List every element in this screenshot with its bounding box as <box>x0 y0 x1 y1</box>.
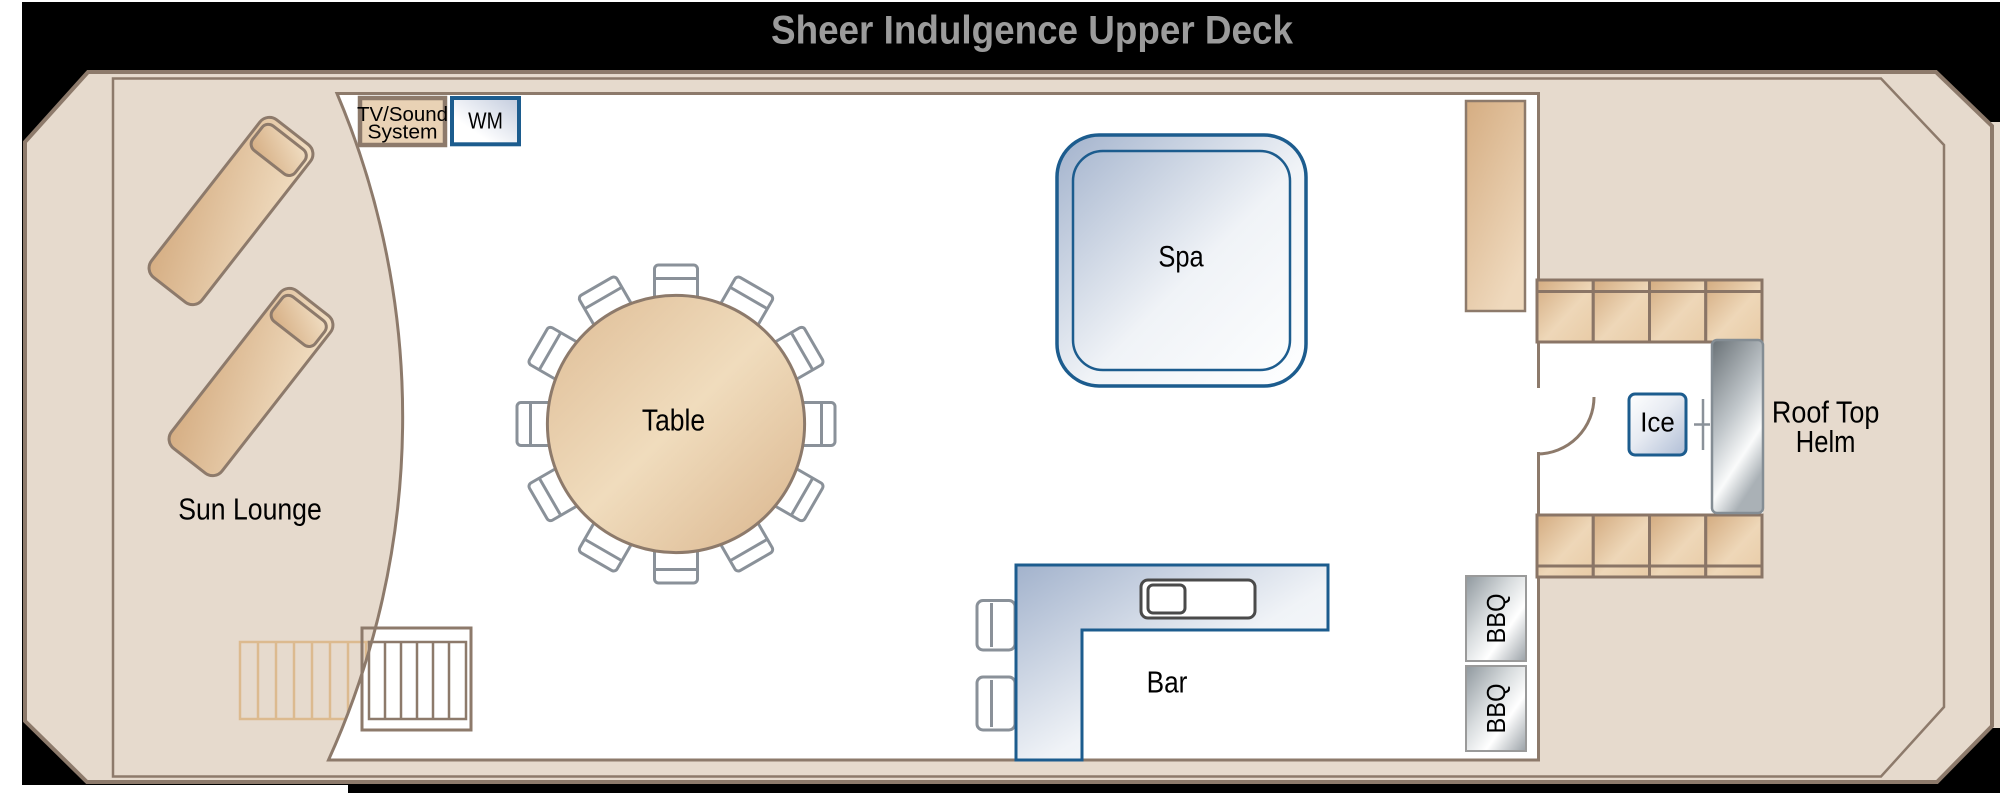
svg-text:Sheer Indulgence Upper Deck: Sheer Indulgence Upper Deck <box>771 9 1294 53</box>
svg-text:Ice: Ice <box>1640 406 1675 437</box>
svg-text:System: System <box>368 122 438 144</box>
svg-text:Table: Table <box>642 403 705 438</box>
svg-text:Helm: Helm <box>1796 424 1856 459</box>
svg-text:WM: WM <box>468 107 503 133</box>
svg-text:Sun Lounge: Sun Lounge <box>178 492 322 527</box>
svg-text:BBQ: BBQ <box>1481 684 1511 734</box>
svg-text:BBQ: BBQ <box>1481 594 1511 644</box>
svg-text:Bar: Bar <box>1147 665 1188 700</box>
svg-text:Spa: Spa <box>1158 241 1204 274</box>
